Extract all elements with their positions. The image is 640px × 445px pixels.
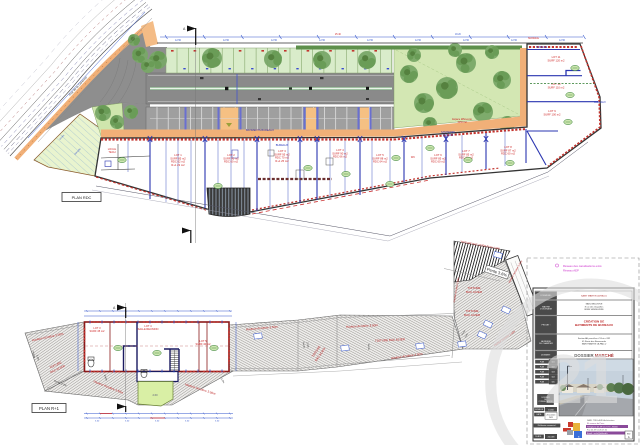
svg-text:N° AFF. :: N° AFF. :: [535, 435, 542, 438]
svg-text:12.50: 12.50: [511, 39, 518, 42]
svg-text:Email : archi@trillaud.fr: Email : archi@trillaud.fr: [587, 432, 608, 435]
svg-text:A: A: [628, 435, 630, 439]
svg-text:SAINT MARTIN LA PALLU: SAINT MARTIN LA PALLU: [581, 295, 607, 298]
svg-text:12.50: 12.50: [271, 39, 278, 42]
svg-text:86 avenue de Paris: 86 avenue de Paris: [587, 423, 604, 425]
svg-text:PROJET :: PROJET :: [542, 324, 551, 326]
svg-text:BUREAUX: BUREAUX: [276, 143, 289, 147]
svg-text:BAC ACIER: BAC ACIER: [466, 290, 483, 294]
svg-text:2.60: 2.60: [152, 393, 158, 397]
svg-text:BATIMENTS DE BUREAUX: BATIMENTS DE BUREAUX: [575, 323, 613, 327]
svg-text:25.40: 25.40: [335, 34, 341, 36]
svg-text:SURFACE: SURFACE: [536, 46, 548, 49]
svg-text:BATIMENTS BUREAUX: BATIMENTS BUREAUX: [246, 128, 274, 132]
svg-text:BUREAUX: BUREAUX: [594, 101, 606, 104]
svg-text:BAC ACIER: BAC ACIER: [464, 313, 481, 317]
svg-text:Réf dossier commercial :: Réf dossier commercial :: [538, 424, 557, 427]
svg-text:PLAN R+1: PLAN R+1: [39, 406, 60, 411]
svg-text:12.50: 12.50: [415, 39, 422, 42]
svg-text:SURFACE: SURFACE: [528, 37, 539, 40]
svg-text:21.058: 21.058: [548, 437, 555, 439]
svg-text:ECHELLE: ECHELLE: [535, 409, 544, 411]
svg-text:86380 VENDEUVRE: 86380 VENDEUVRE: [584, 309, 604, 311]
svg-text:D'OUVRAGE: D'OUVRAGE: [540, 308, 552, 311]
svg-text:12.50: 12.50: [367, 39, 374, 42]
svg-text:Fax 05 49 51 26 17 41: Fax 05 49 51 26 17 41: [587, 430, 608, 432]
svg-text:12.50: 12.50: [559, 39, 566, 42]
svg-text:18.20: 18.20: [455, 34, 461, 36]
svg-text:Réseau des canalisations exist: Réseau des canalisations exist.: [563, 264, 602, 268]
svg-text:Réseau AEP: Réseau AEP: [563, 269, 579, 273]
svg-text:SARL TRILLAUD Architecture: SARL TRILLAUD Architecture: [587, 419, 615, 422]
svg-text:21: 21: [544, 340, 617, 418]
svg-text:DATE :: DATE :: [537, 413, 543, 416]
svg-text:12.50: 12.50: [175, 39, 182, 42]
svg-text:12.50: 12.50: [463, 39, 470, 42]
svg-text:Téléphone 05 49 51 21 70 - 860: Téléphone 05 49 51 21 70 - 86000: [587, 426, 619, 428]
svg-text:PLAN RDC: PLAN RDC: [72, 195, 92, 200]
svg-text:8 rue des Chapelles: 8 rue des Chapelles: [585, 305, 603, 308]
svg-text:12.50: 12.50: [319, 39, 326, 42]
svg-text:WC: WC: [411, 156, 415, 159]
svg-text:SARL BELLEVUE: SARL BELLEVUE: [586, 303, 603, 306]
svg-text:Pente: Pente: [367, 344, 371, 351]
svg-text:12.50: 12.50: [223, 39, 230, 42]
svg-text:LOCALTECH: LOCALTECH: [108, 147, 117, 154]
